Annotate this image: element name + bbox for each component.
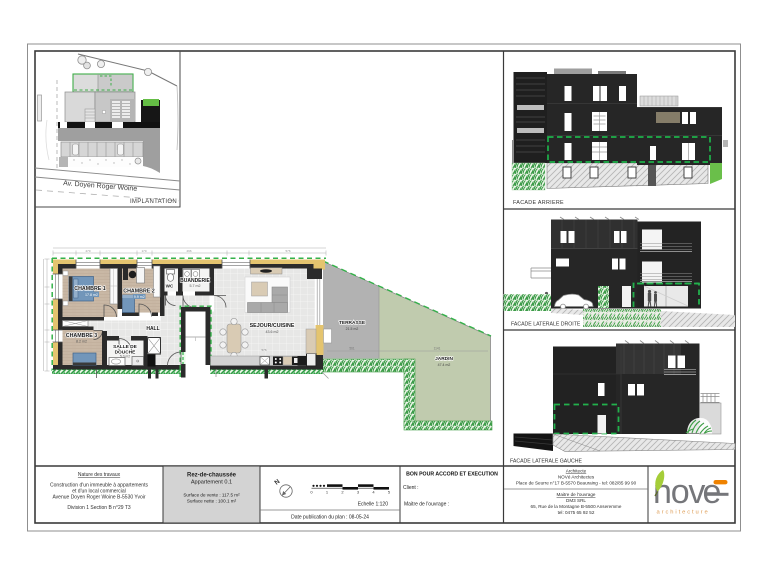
svg-text:CHAMBRE 3: CHAMBRE 3 [66, 333, 98, 339]
svg-text:BON POUR ACCORD ET EXECUTION: BON POUR ACCORD ET EXECUTION [406, 472, 498, 478]
svg-text:JARDIN: JARDIN [435, 356, 453, 362]
svg-text:FACADE LATERALE GAUCHE: FACADE LATERALE GAUCHE [510, 459, 583, 465]
svg-text:architecture: architecture [657, 510, 710, 516]
svg-text:Client :: Client : [403, 485, 419, 491]
svg-text:576: 576 [285, 249, 290, 253]
svg-text:CHAMBRE 2: CHAMBRE 2 [123, 289, 155, 295]
svg-text:CHAMBRE 1: CHAMBRE 1 [74, 286, 106, 292]
svg-text:TERRASSE: TERRASSE [339, 320, 366, 326]
svg-text:Rez-de-chaussée: Rez-de-chaussée [187, 473, 237, 479]
svg-text:Maitre de l'ouvrage: Maitre de l'ouvrage [557, 492, 596, 497]
svg-text:21.5 m2: 21.5 m2 [346, 327, 359, 331]
svg-text:IMPLANTATION: IMPLANTATION [130, 199, 177, 205]
svg-text:Surface de vente : 117.5 m²: Surface de vente : 117.5 m² [183, 493, 240, 498]
svg-text:8.2 m2: 8.2 m2 [76, 340, 87, 344]
svg-text:561: 561 [349, 347, 355, 351]
svg-text:FACADE ARRIERE: FACADE ARRIERE [513, 200, 564, 206]
svg-text:Avenue Doyen Roger Woine B-553: Avenue Doyen Roger Woine B-5530 Yvoir [52, 495, 145, 501]
svg-text:1141: 1141 [434, 347, 441, 351]
svg-text:Division 1 Section B n°29 T3: Division 1 Section B n°29 T3 [67, 505, 131, 511]
svg-text:WC: WC [166, 284, 174, 289]
svg-text:SALLE DE: SALLE DE [113, 344, 138, 350]
svg-text:296: 296 [186, 249, 191, 253]
svg-text:5.0 m2: 5.0 m2 [120, 355, 130, 359]
svg-text:tel: 0475 65 92 52: tel: 0475 65 92 52 [558, 510, 595, 515]
svg-text:170: 170 [141, 249, 146, 253]
svg-text:Architecte: Architecte [566, 469, 587, 474]
svg-text:FACADE LATERALE DROITE: FACADE LATERALE DROITE [511, 322, 581, 328]
svg-text:576: 576 [261, 348, 266, 352]
svg-text:DM3 SRL: DM3 SRL [566, 498, 586, 503]
svg-text:SEJOUR/CUISINE: SEJOUR/CUISINE [250, 323, 295, 329]
svg-text:Nature des travaux: Nature des travaux [78, 472, 121, 478]
svg-text:5.7 m2: 5.7 m2 [190, 284, 201, 288]
svg-text:e: e [703, 473, 722, 511]
svg-text:Appartement 0.1: Appartement 0.1 [191, 480, 232, 486]
svg-text:9.9 m2: 9.9 m2 [134, 295, 145, 299]
svg-text:270: 270 [85, 249, 90, 253]
svg-text:HALL: HALL [146, 326, 159, 332]
svg-text:43.6 m2: 43.6 m2 [266, 330, 279, 334]
svg-text:Date publication du plan : 08-: Date publication du plan : 08-05-24 [291, 515, 369, 521]
svg-text:17.8 m2: 17.8 m2 [85, 293, 98, 297]
svg-text:Echelle 1:120: Echelle 1:120 [358, 502, 389, 508]
svg-text:NOVé Architectes: NOVé Architectes [558, 475, 595, 480]
svg-text:47.4 m2: 47.4 m2 [438, 363, 451, 367]
svg-text:Surface nette : 100.1 m²: Surface nette : 100.1 m² [187, 499, 237, 504]
svg-text:Maitre de l'ouvrage :: Maitre de l'ouvrage : [404, 502, 449, 508]
svg-text:65, Rue de la Montagne B-5500: 65, Rue de la Montagne B-5500 Anseremme [531, 504, 622, 509]
svg-text:Place de Seurre n°17 B-5570 Be: Place de Seurre n°17 B-5570 Beauraing - … [516, 481, 637, 486]
